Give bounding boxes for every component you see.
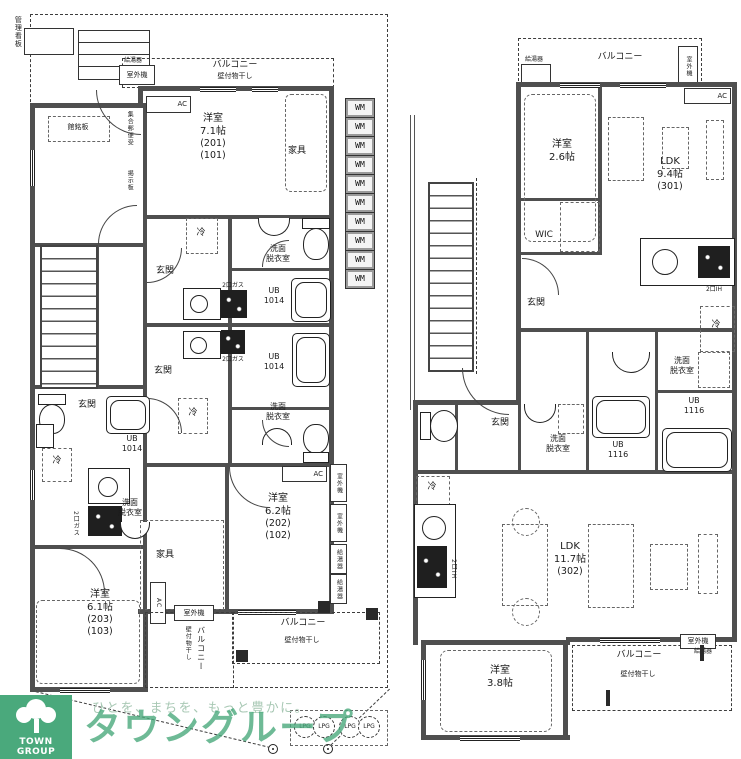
tree-icon-part bbox=[40, 707, 56, 723]
wall-segment bbox=[563, 640, 568, 740]
sink-bowl bbox=[422, 516, 446, 540]
fridge-label: 冷 bbox=[185, 408, 201, 419]
balcony-label: バルコニー bbox=[604, 650, 674, 661]
window bbox=[620, 83, 666, 88]
wall-segment bbox=[455, 404, 458, 470]
chair-outline bbox=[512, 598, 540, 626]
toilet bbox=[303, 452, 329, 463]
wall-segment bbox=[30, 545, 147, 549]
ub-label: UB 1116 bbox=[676, 396, 712, 415]
entrance-label: 玄関 bbox=[482, 418, 518, 429]
ac-box: AC bbox=[282, 466, 327, 482]
water-heater-label: 給湯器 bbox=[519, 56, 549, 63]
staircase bbox=[40, 245, 98, 389]
furniture-label: 家具 bbox=[150, 550, 180, 561]
furniture-outline bbox=[662, 127, 689, 169]
washbasin-counter bbox=[36, 424, 54, 448]
washroom-label: 洗面 脱衣室 bbox=[536, 434, 580, 453]
fridge-label: 冷 bbox=[193, 228, 209, 239]
window bbox=[30, 150, 35, 186]
washing-machine-pad: WM bbox=[346, 137, 374, 155]
bed-outline bbox=[36, 600, 140, 684]
wall-hanger-label: 壁付物干し bbox=[272, 636, 332, 644]
entrance-label: 玄関 bbox=[70, 400, 104, 411]
outdoor-unit-box: 室外機 bbox=[174, 605, 214, 621]
water-heater-label: 給湯器 bbox=[118, 57, 148, 64]
wall-segment bbox=[30, 103, 35, 692]
wall-hanger-label: 壁付物干し bbox=[608, 670, 668, 678]
balcony-post bbox=[236, 650, 248, 662]
water-heater-box: 給湯器 bbox=[330, 544, 347, 574]
fridge-label: 冷 bbox=[708, 320, 724, 331]
balcony-label: バルコニー bbox=[268, 618, 338, 629]
gas-label: 2口ガス bbox=[216, 356, 250, 363]
wall-segment bbox=[225, 463, 229, 613]
bed-outline bbox=[285, 94, 327, 192]
wall-segment bbox=[421, 640, 570, 645]
outdoor-unit-box: 室外機 bbox=[119, 65, 155, 85]
sink-bowl bbox=[652, 249, 678, 275]
furniture-outline bbox=[608, 117, 644, 181]
bathtub bbox=[291, 278, 331, 322]
wall-segment bbox=[518, 404, 521, 470]
window bbox=[200, 87, 236, 92]
ih-label: 2口IH bbox=[450, 548, 457, 590]
ih-stove bbox=[698, 246, 730, 278]
wic-label: WIC bbox=[524, 230, 564, 241]
toilet-bowl bbox=[430, 410, 458, 442]
washroom-label: 洗面 脱衣室 bbox=[256, 402, 300, 421]
tree-trunk bbox=[34, 719, 39, 733]
ub-label: UB 1116 bbox=[600, 440, 636, 459]
window bbox=[560, 83, 600, 88]
balcony-post bbox=[700, 645, 704, 661]
wall-segment bbox=[516, 82, 521, 404]
washing-machine-pad: WM bbox=[346, 251, 374, 269]
wall-segment bbox=[586, 328, 589, 474]
bathtub bbox=[106, 396, 150, 434]
gas-label: 2口ガス bbox=[72, 506, 79, 542]
wic-shelf bbox=[560, 202, 600, 252]
name-plate-label: 館銘板 bbox=[50, 123, 106, 131]
sink-bowl bbox=[98, 477, 118, 497]
washing-machine-pad: WM bbox=[346, 232, 374, 250]
balcony-post bbox=[606, 690, 610, 706]
furniture-outline bbox=[706, 120, 724, 180]
entrance-label: 玄関 bbox=[146, 366, 180, 377]
door-arc bbox=[522, 258, 559, 295]
balcony-label: バルコニー bbox=[195, 60, 275, 71]
ih-label: 2口IH bbox=[694, 286, 734, 293]
balcony-label: バルコニー bbox=[580, 52, 660, 63]
floor-plan-canvas: 管理看板 バルコニー 壁付物干し 給湯器 室外機 WM WM WM WM WM … bbox=[0, 0, 741, 759]
washbasin bbox=[612, 352, 650, 373]
gas-stove bbox=[221, 290, 247, 318]
stair-handrail bbox=[476, 178, 477, 374]
logo-text: TOWN GROUP bbox=[0, 737, 72, 757]
bathtub bbox=[592, 396, 650, 438]
outdoor-unit-box: 室外機 bbox=[678, 46, 698, 86]
tree-icon-part bbox=[16, 707, 32, 723]
wall-segment bbox=[655, 390, 737, 393]
window bbox=[460, 736, 520, 741]
washing-machine-pad: WM bbox=[346, 194, 374, 212]
bathtub bbox=[662, 428, 732, 472]
wall-segment bbox=[230, 268, 330, 271]
window bbox=[421, 660, 426, 700]
ac-box: AC bbox=[684, 88, 731, 104]
bathtub bbox=[292, 333, 330, 387]
washing-machine-pad: WM bbox=[346, 270, 374, 288]
window bbox=[252, 87, 278, 92]
washer-pan bbox=[558, 404, 584, 434]
sink-bowl bbox=[190, 337, 207, 354]
sofa-outline bbox=[588, 524, 634, 608]
wall-hanger-label: 壁付物干し bbox=[205, 72, 265, 80]
toilet-bowl bbox=[303, 228, 329, 260]
window bbox=[30, 470, 35, 500]
wall-segment bbox=[516, 252, 602, 255]
window bbox=[60, 688, 110, 693]
toilet-bowl bbox=[303, 424, 329, 454]
balcony-post bbox=[366, 608, 378, 620]
outdoor-unit-box: 室外機 bbox=[330, 504, 347, 542]
water-heater-box: 給湯器 bbox=[330, 574, 347, 604]
table-outline bbox=[502, 524, 548, 606]
ub-label: UB 1014 bbox=[116, 434, 148, 453]
washing-machine-pad: WM bbox=[346, 175, 374, 193]
town-group-logo: TOWN GROUP bbox=[0, 695, 72, 759]
washing-machine-pad: WM bbox=[346, 213, 374, 231]
water-heater-box bbox=[521, 64, 551, 84]
site-boundary-right bbox=[410, 115, 415, 410]
ub-label: UB 1014 bbox=[258, 286, 290, 305]
lpg-tank: LPG bbox=[358, 716, 380, 738]
wall-segment bbox=[655, 328, 658, 474]
sink-bowl bbox=[190, 295, 208, 313]
ub-label: UB 1014 bbox=[258, 352, 290, 371]
bed-outline bbox=[440, 650, 552, 732]
furniture-label: 家具 bbox=[282, 146, 312, 157]
window bbox=[600, 638, 660, 643]
outdoor-unit-box: 室外機 bbox=[680, 634, 716, 649]
notice-board-label: 掲示板 bbox=[126, 160, 133, 200]
room-label-201: 洋室7.1帖 (201)(101) bbox=[183, 112, 243, 163]
fridge-label: 冷 bbox=[49, 456, 65, 467]
washroom-label: 洗面 脱衣室 bbox=[108, 498, 152, 517]
ih-stove bbox=[417, 546, 447, 588]
wall-segment bbox=[143, 323, 333, 327]
chair-outline bbox=[512, 508, 540, 536]
sign-box bbox=[24, 28, 74, 55]
balcony-label: バルコニー bbox=[196, 622, 206, 674]
washing-machine-pad: WM bbox=[346, 99, 374, 117]
brand-name: タウングループ bbox=[84, 708, 355, 749]
wall-segment bbox=[138, 86, 334, 91]
gas-stove bbox=[221, 330, 245, 354]
furniture-outline bbox=[650, 544, 688, 590]
tv-board-outline bbox=[698, 534, 718, 594]
balcony-post bbox=[318, 601, 330, 613]
ac-box: AC bbox=[146, 96, 191, 113]
management-sign-label: 管理看板 bbox=[14, 6, 22, 58]
washbasin bbox=[524, 404, 556, 423]
fridge-label: 冷 bbox=[424, 482, 440, 493]
washing-machine-pad: WM bbox=[346, 118, 374, 136]
washing-machine-pad: WM bbox=[346, 156, 374, 174]
outdoor-unit-box: 室外機 bbox=[330, 464, 347, 502]
staircase bbox=[428, 182, 474, 372]
wall-segment bbox=[732, 82, 737, 642]
gas-label: 2口ガス bbox=[216, 282, 250, 289]
entrance-label: 玄関 bbox=[518, 298, 554, 309]
door-arc bbox=[462, 368, 509, 415]
wall-hanger-label: 壁付物干し bbox=[184, 624, 191, 662]
washer-pan bbox=[698, 352, 730, 388]
